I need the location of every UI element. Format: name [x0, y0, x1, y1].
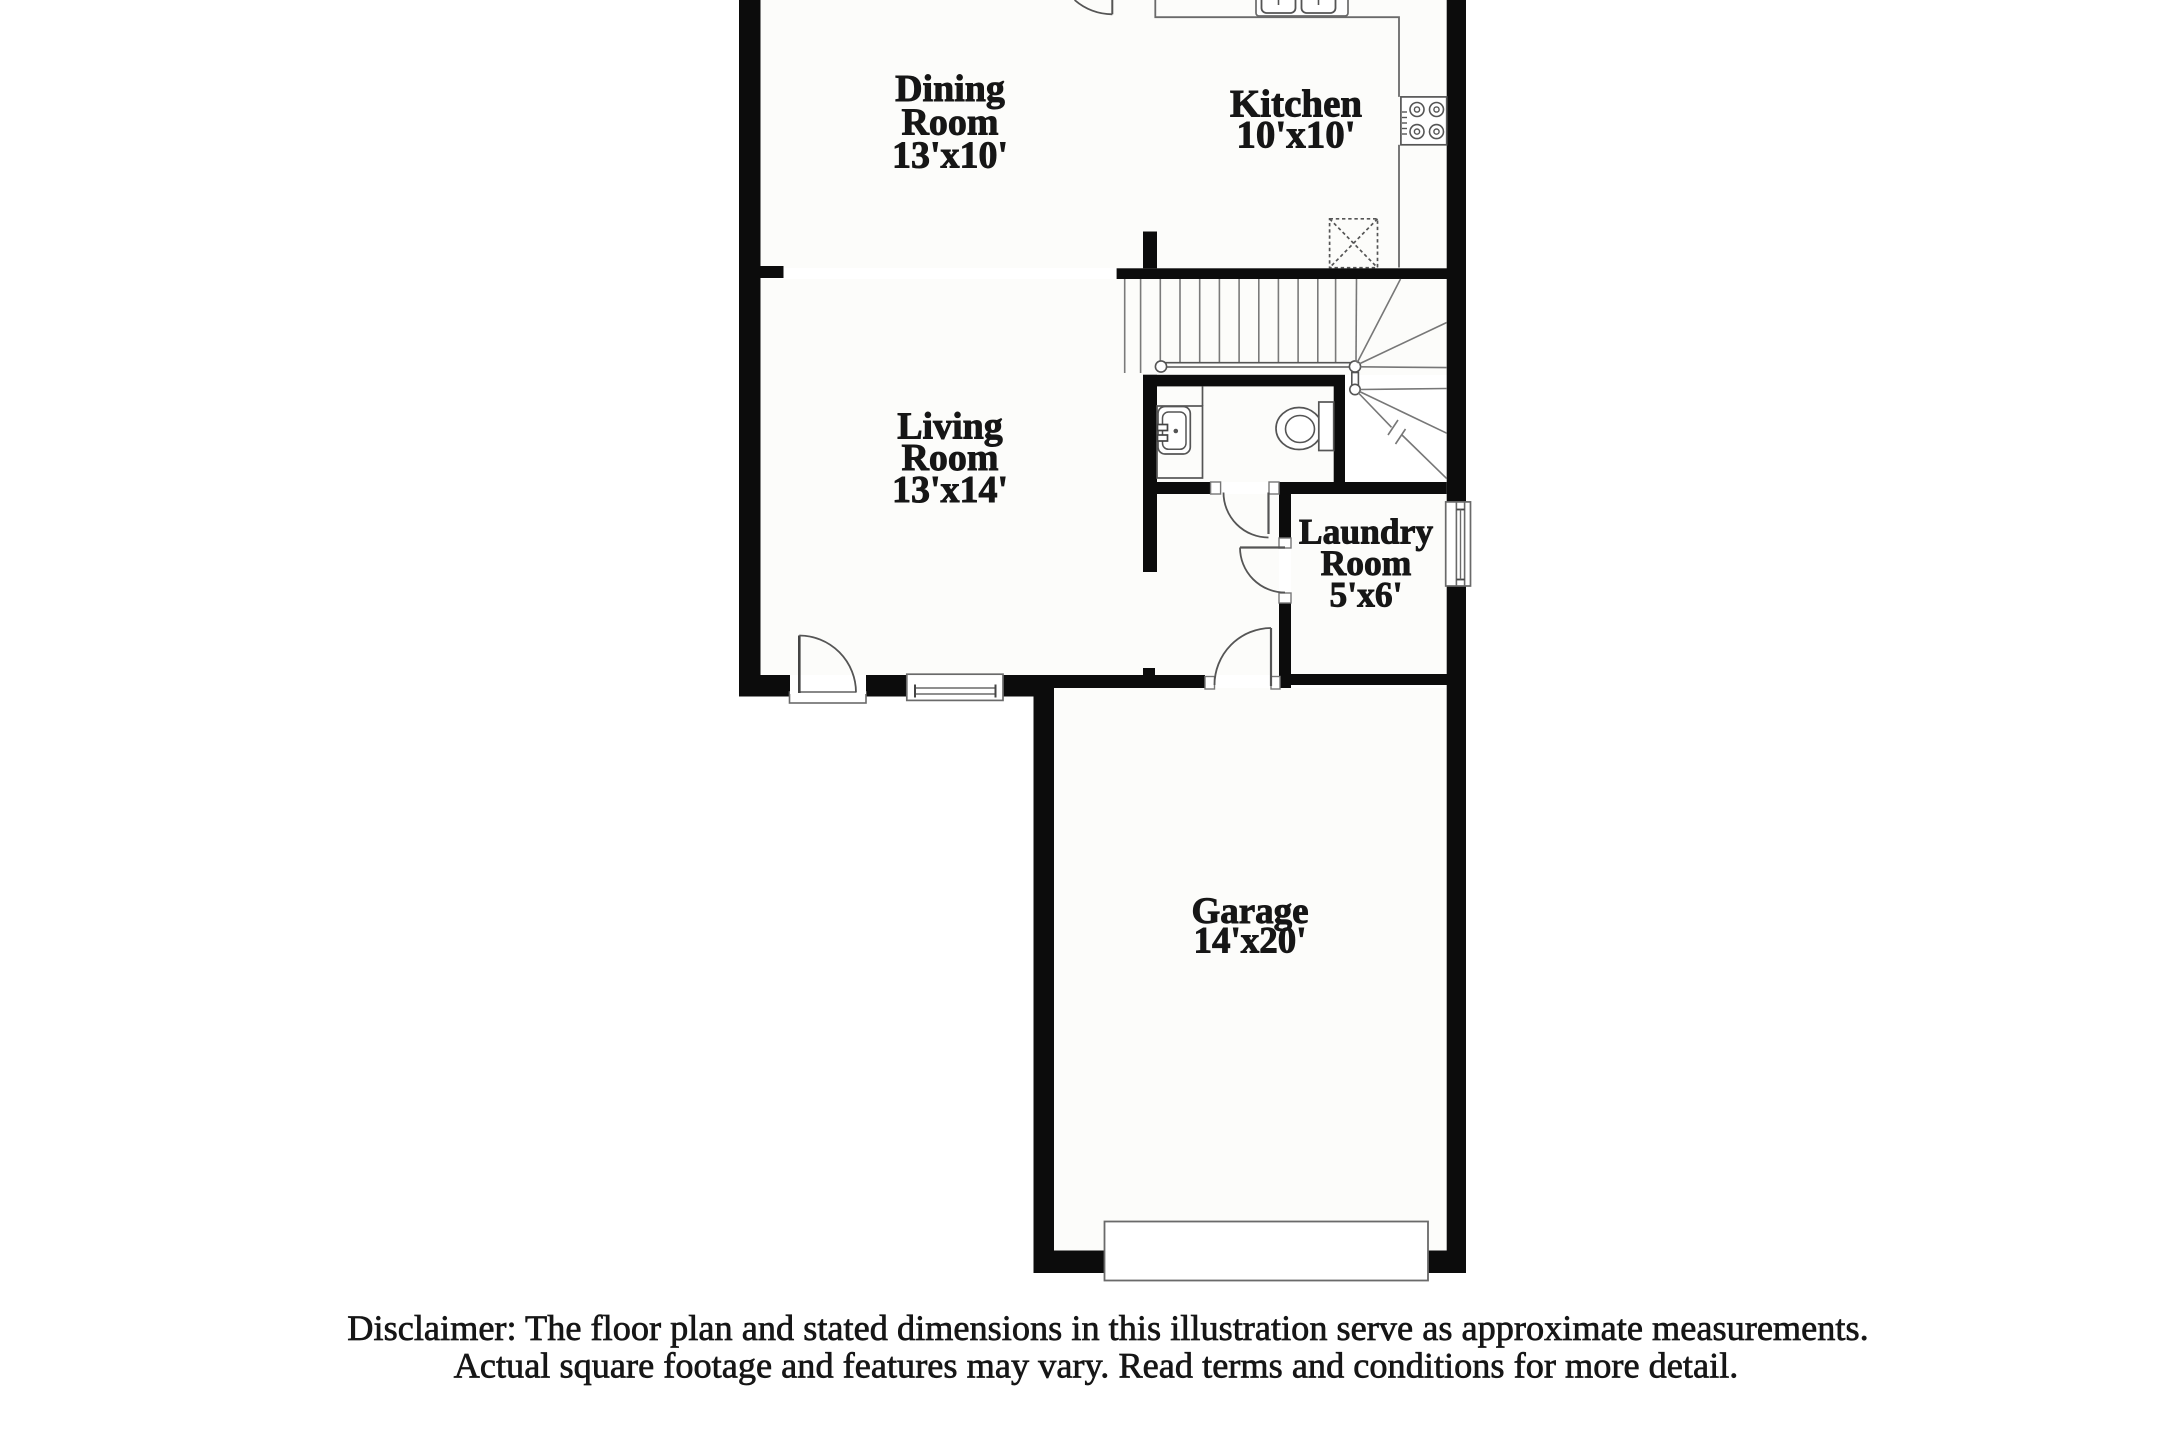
svg-text:13'x14': 13'x14' [892, 469, 1008, 511]
svg-text:10'x10': 10'x10' [1236, 114, 1355, 157]
svg-text:14'x20': 14'x20' [1193, 921, 1306, 962]
svg-text:Disclaimer: The floor plan and: Disclaimer: The floor plan and stated di… [347, 1308, 1868, 1348]
svg-text:13'x10': 13'x10' [892, 135, 1008, 177]
svg-text:Actual square footage and feat: Actual square footage and features may v… [454, 1346, 1739, 1386]
svg-text:5'x6': 5'x6' [1330, 575, 1403, 615]
